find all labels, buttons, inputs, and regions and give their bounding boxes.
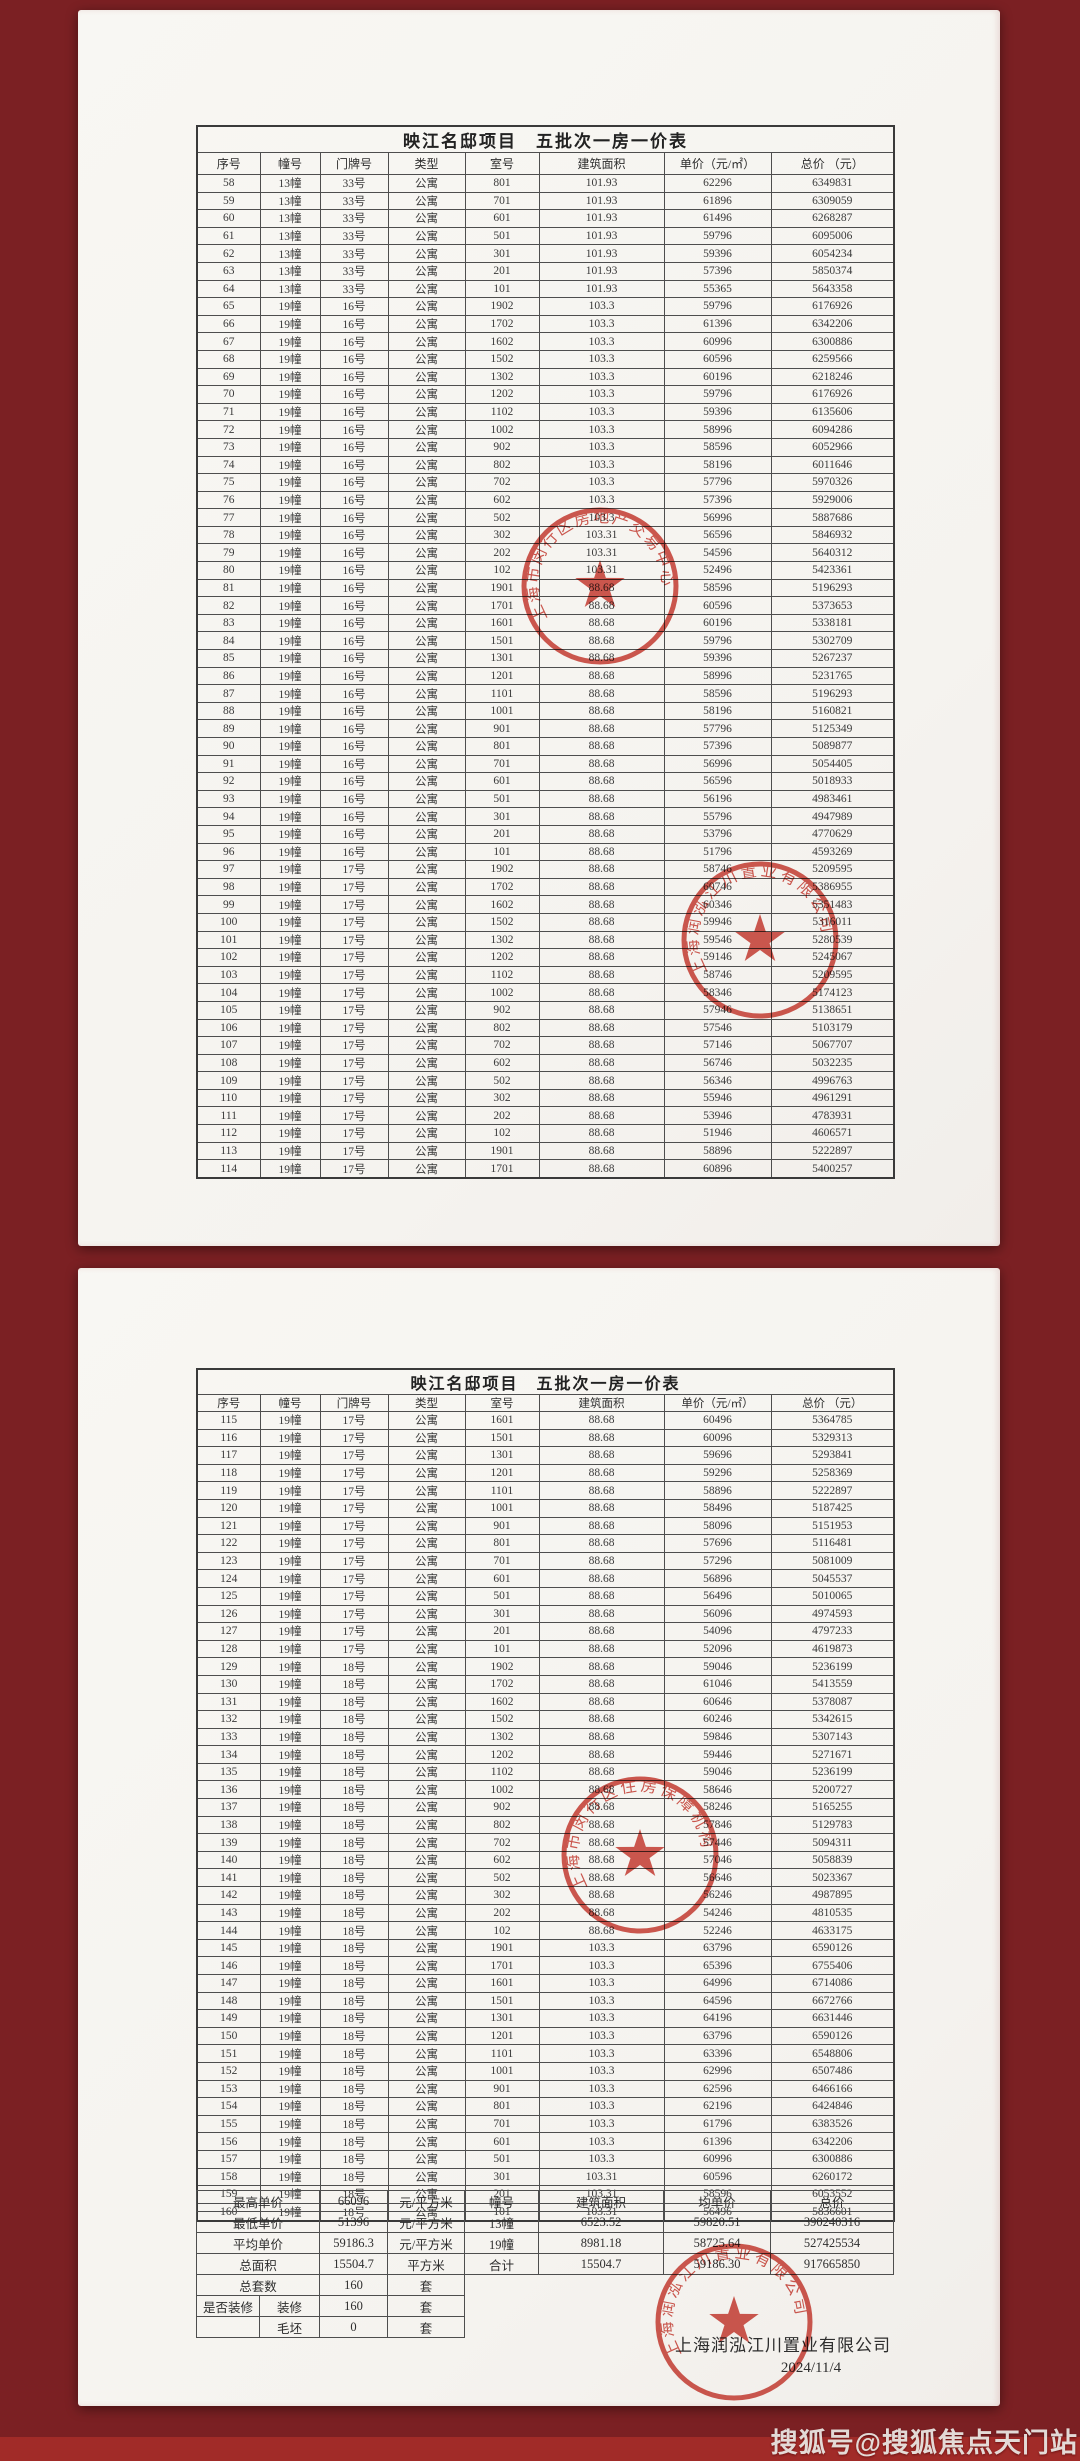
price-cell: 5196293 xyxy=(771,685,894,703)
price-cell: 150 xyxy=(197,2027,260,2045)
price-cell: 公寓 xyxy=(388,1763,465,1781)
price-cell: 88.68 xyxy=(539,1107,664,1125)
price-cell: 18号 xyxy=(320,1711,388,1729)
price-cell: 114 xyxy=(197,1160,260,1178)
price-cell: 1101 xyxy=(465,2045,539,2063)
price-cell: 301 xyxy=(465,1605,539,1623)
price-cell: 公寓 xyxy=(388,386,465,404)
price-cell: 64196 xyxy=(664,2010,771,2028)
company-block: 上海润泓江川置业有限公司 2024/11/4 xyxy=(583,2331,983,2377)
price-cell: 101.93 xyxy=(539,280,664,298)
price-cell: 88.68 xyxy=(539,702,664,720)
price-table-page1: 映江名邸项目 五批次一房一价表序号幢号门牌号类型室号建筑面积单价（元/㎡）总价 … xyxy=(196,125,895,1179)
summary-row: 平均单价59186.3元/平方米19幢8981.1858725.64527425… xyxy=(197,2233,894,2254)
price-cell: 19幢 xyxy=(260,966,320,984)
price-cell: 88.68 xyxy=(539,1054,664,1072)
summary-label: 最低单价 xyxy=(197,2212,320,2233)
summary-right-cell: 建筑面积 xyxy=(539,2191,664,2212)
price-cell: 19幢 xyxy=(260,949,320,967)
price-cell: 公寓 xyxy=(388,2150,465,2168)
price-row: 15519幢18号公寓701103.3617966383526 xyxy=(197,2115,894,2133)
price-cell: 1501 xyxy=(465,1992,539,2010)
price-cell: 5067707 xyxy=(771,1037,894,1055)
price-cell: 101.93 xyxy=(539,245,664,263)
price-cell: 88.68 xyxy=(539,1781,664,1799)
price-cell: 78 xyxy=(197,526,260,544)
price-cell: 公寓 xyxy=(388,1658,465,1676)
price-cell: 18号 xyxy=(320,1799,388,1817)
price-row: 10919幢17号公寓50288.68563464996763 xyxy=(197,1072,894,1090)
price-cell: 公寓 xyxy=(388,2027,465,2045)
price-cell: 71 xyxy=(197,403,260,421)
price-cell: 5200727 xyxy=(771,1781,894,1799)
price-cell: 101.93 xyxy=(539,227,664,245)
price-cell: 118 xyxy=(197,1464,260,1482)
price-cell: 104 xyxy=(197,984,260,1002)
price-cell: 4987895 xyxy=(771,1887,894,1905)
price-cell: 19幢 xyxy=(260,685,320,703)
price-cell: 59146 xyxy=(664,949,771,967)
price-cell: 4593269 xyxy=(771,843,894,861)
price-cell: 103.3 xyxy=(539,421,664,439)
column-header: 单价（元/㎡） xyxy=(664,153,771,175)
price-cell: 4783931 xyxy=(771,1107,894,1125)
summary-row: 是否装修装修160套 xyxy=(197,2296,894,2317)
price-cell: 5386955 xyxy=(771,878,894,896)
price-cell: 公寓 xyxy=(388,2168,465,2186)
price-cell: 88.68 xyxy=(539,597,664,615)
price-cell: 60896 xyxy=(664,1160,771,1178)
price-cell: 公寓 xyxy=(388,245,465,263)
price-cell: 1601 xyxy=(465,1975,539,1993)
price-cell: 公寓 xyxy=(388,1037,465,1055)
price-cell: 16号 xyxy=(320,808,388,826)
price-cell: 5196293 xyxy=(771,579,894,597)
price-cell: 19幢 xyxy=(260,790,320,808)
summary-unit: 套 xyxy=(388,2317,465,2338)
price-cell: 1502 xyxy=(465,1711,539,1729)
price-cell: 5929006 xyxy=(771,491,894,509)
price-cell: 公寓 xyxy=(388,1922,465,1940)
price-cell: 5165255 xyxy=(771,1799,894,1817)
price-cell: 19幢 xyxy=(260,421,320,439)
price-row: 8819幢16号公寓100188.68581965160821 xyxy=(197,702,894,720)
price-cell: 16号 xyxy=(320,579,388,597)
price-row: 15219幢18号公寓1001103.3629966507486 xyxy=(197,2062,894,2080)
price-cell: 5187425 xyxy=(771,1499,894,1517)
price-cell: 58746 xyxy=(664,966,771,984)
price-cell: 88.68 xyxy=(539,1834,664,1852)
price-cell: 88.68 xyxy=(539,1089,664,1107)
price-cell: 1001 xyxy=(465,2062,539,2080)
price-row: 10419幢17号公寓100288.68583465174123 xyxy=(197,984,894,1002)
column-header: 室号 xyxy=(465,153,539,175)
price-cell: 1602 xyxy=(465,333,539,351)
price-row: 10219幢17号公寓120288.68591465245067 xyxy=(197,949,894,967)
price-cell: 5160821 xyxy=(771,702,894,720)
price-cell: 33号 xyxy=(320,210,388,228)
doc-title-row: 映江名邸项目 五批次一房一价表 xyxy=(197,1369,894,1395)
price-row: 8319幢16号公寓160188.68601965338181 xyxy=(197,614,894,632)
column-header: 类型 xyxy=(388,153,465,175)
price-cell: 5209595 xyxy=(771,861,894,879)
summary-right-cell: 合计 xyxy=(465,2254,539,2275)
price-cell: 103.3 xyxy=(539,491,664,509)
price-cell: 公寓 xyxy=(388,949,465,967)
price-cell: 58496 xyxy=(664,1499,771,1517)
price-cell: 6268287 xyxy=(771,210,894,228)
price-cell: 59846 xyxy=(664,1728,771,1746)
price-cell: 17号 xyxy=(320,1552,388,1570)
price-cell: 公寓 xyxy=(388,931,465,949)
price-row: 10019幢17号公寓150288.68599465316011 xyxy=(197,913,894,931)
price-cell: 19幢 xyxy=(260,2080,320,2098)
price-cell: 19幢 xyxy=(260,1037,320,1055)
price-cell: 58 xyxy=(197,175,260,193)
price-cell: 52246 xyxy=(664,1922,771,1940)
price-cell: 公寓 xyxy=(388,421,465,439)
price-row: 8719幢16号公寓110188.68585965196293 xyxy=(197,685,894,703)
price-cell: 1001 xyxy=(465,702,539,720)
price-cell: 5058839 xyxy=(771,1851,894,1869)
price-cell: 16号 xyxy=(320,333,388,351)
price-cell: 602 xyxy=(465,1851,539,1869)
price-cell: 16号 xyxy=(320,632,388,650)
price-cell: 公寓 xyxy=(388,1447,465,1465)
price-cell: 19幢 xyxy=(260,843,320,861)
price-cell: 52096 xyxy=(664,1640,771,1658)
price-cell: 701 xyxy=(465,755,539,773)
price-cell: 103.31 xyxy=(539,562,664,580)
price-cell: 111 xyxy=(197,1107,260,1125)
price-cell: 5373653 xyxy=(771,597,894,615)
price-row: 6519幢16号公寓1902103.3597966176926 xyxy=(197,298,894,316)
price-cell: 58996 xyxy=(664,667,771,685)
price-cell: 公寓 xyxy=(388,984,465,1002)
price-cell: 5010065 xyxy=(771,1587,894,1605)
price-cell: 117 xyxy=(197,1447,260,1465)
price-cell: 88.68 xyxy=(539,861,664,879)
price-cell: 202 xyxy=(465,1904,539,1922)
price-cell: 1302 xyxy=(465,1728,539,1746)
price-cell: 公寓 xyxy=(388,825,465,843)
price-cell: 5054405 xyxy=(771,755,894,773)
price-cell: 101.93 xyxy=(539,192,664,210)
price-cell: 17号 xyxy=(320,1535,388,1553)
price-cell: 88.68 xyxy=(539,667,664,685)
price-cell: 5364785 xyxy=(771,1412,894,1430)
price-cell: 77 xyxy=(197,509,260,527)
price-cell: 17号 xyxy=(320,1107,388,1125)
price-cell: 88.68 xyxy=(539,755,664,773)
price-cell: 公寓 xyxy=(388,650,465,668)
price-cell: 公寓 xyxy=(388,227,465,245)
price-row: 15619幢18号公寓601103.3613966342206 xyxy=(197,2133,894,2151)
price-cell: 88.68 xyxy=(539,1499,664,1517)
price-cell: 124 xyxy=(197,1570,260,1588)
price-cell: 801 xyxy=(465,2098,539,2116)
watermark-text: 搜狐号@搜狐焦点天门站 xyxy=(771,2421,1078,2460)
price-cell: 60996 xyxy=(664,2150,771,2168)
price-cell: 57696 xyxy=(664,1535,771,1553)
price-cell: 17号 xyxy=(320,966,388,984)
price-cell: 59946 xyxy=(664,913,771,931)
price-cell: 公寓 xyxy=(388,1799,465,1817)
price-cell: 1302 xyxy=(465,931,539,949)
price-cell: 1501 xyxy=(465,632,539,650)
price-row: 14819幢18号公寓1501103.3645966672766 xyxy=(197,1992,894,2010)
price-cell: 132 xyxy=(197,1711,260,1729)
price-cell: 56346 xyxy=(664,1072,771,1090)
price-cell: 16号 xyxy=(320,474,388,492)
price-cell: 公寓 xyxy=(388,861,465,879)
price-cell: 19幢 xyxy=(260,1160,320,1178)
price-cell: 19幢 xyxy=(260,1992,320,2010)
price-row: 12219幢17号公寓80188.68576965116481 xyxy=(197,1535,894,1553)
price-cell: 19幢 xyxy=(260,350,320,368)
summary-value: 15504.7 xyxy=(320,2254,388,2275)
price-cell: 公寓 xyxy=(388,1412,465,1430)
price-row: 15119幢18号公寓1101103.3633966548806 xyxy=(197,2045,894,2063)
price-cell: 6755406 xyxy=(771,1957,894,1975)
price-cell: 19幢 xyxy=(260,632,320,650)
price-cell: 19幢 xyxy=(260,1851,320,1869)
price-row: 6819幢16号公寓1502103.3605966259566 xyxy=(197,350,894,368)
price-cell: 65396 xyxy=(664,1957,771,1975)
price-cell: 19幢 xyxy=(260,1693,320,1711)
price-cell: 602 xyxy=(465,1054,539,1072)
price-cell: 58096 xyxy=(664,1517,771,1535)
price-cell: 6054234 xyxy=(771,245,894,263)
price-row: 6213幢33号公寓301101.93593966054234 xyxy=(197,245,894,263)
price-row: 14119幢18号公寓50288.68566465023367 xyxy=(197,1869,894,1887)
price-cell: 602 xyxy=(465,491,539,509)
price-cell: 63796 xyxy=(664,2027,771,2045)
price-cell: 5316011 xyxy=(771,913,894,931)
price-cell: 19幢 xyxy=(260,1975,320,1993)
price-cell: 88.68 xyxy=(539,1429,664,1447)
price-cell: 4606571 xyxy=(771,1125,894,1143)
price-cell: 16号 xyxy=(320,597,388,615)
price-cell: 16号 xyxy=(320,544,388,562)
price-cell: 80 xyxy=(197,562,260,580)
price-cell: 公寓 xyxy=(388,210,465,228)
summary-value: 51396 xyxy=(320,2212,388,2233)
price-cell: 5018933 xyxy=(771,773,894,791)
price-cell: 62196 xyxy=(664,2098,771,2116)
price-cell: 6309059 xyxy=(771,192,894,210)
price-cell: 6176926 xyxy=(771,386,894,404)
price-cell: 公寓 xyxy=(388,913,465,931)
price-cell: 19幢 xyxy=(260,526,320,544)
price-cell: 公寓 xyxy=(388,1623,465,1641)
price-cell: 公寓 xyxy=(388,1072,465,1090)
price-cell: 301 xyxy=(465,2168,539,2186)
price-cell: 157 xyxy=(197,2150,260,2168)
price-cell: 106 xyxy=(197,1019,260,1037)
price-cell: 66 xyxy=(197,315,260,333)
price-cell: 公寓 xyxy=(388,702,465,720)
price-cell: 公寓 xyxy=(388,298,465,316)
price-cell: 88.68 xyxy=(539,685,664,703)
price-cell: 56246 xyxy=(664,1887,771,1905)
price-cell: 1901 xyxy=(465,579,539,597)
price-cell: 134 xyxy=(197,1746,260,1764)
price-cell: 公寓 xyxy=(388,1107,465,1125)
price-cell: 18号 xyxy=(320,1992,388,2010)
price-cell: 公寓 xyxy=(388,315,465,333)
price-cell: 5293841 xyxy=(771,1447,894,1465)
price-cell: 17号 xyxy=(320,913,388,931)
price-cell: 54596 xyxy=(664,544,771,562)
price-cell: 59696 xyxy=(664,1447,771,1465)
price-row: 11319幢17号公寓190188.68588965222897 xyxy=(197,1142,894,1160)
price-cell: 88.68 xyxy=(539,1658,664,1676)
price-row: 12319幢17号公寓70188.68572965081009 xyxy=(197,1552,894,1570)
price-cell: 56496 xyxy=(664,1587,771,1605)
price-row: 11919幢17号公寓110188.68588965222897 xyxy=(197,1482,894,1500)
price-cell: 19幢 xyxy=(260,1464,320,1482)
price-cell: 103.3 xyxy=(539,315,664,333)
price-cell: 88 xyxy=(197,702,260,720)
price-cell: 公寓 xyxy=(388,1499,465,1517)
price-cell: 801 xyxy=(465,1535,539,1553)
price-cell: 84 xyxy=(197,632,260,650)
price-row: 10619幢17号公寓80288.68575465103179 xyxy=(197,1019,894,1037)
price-cell: 18号 xyxy=(320,1781,388,1799)
price-cell: 1101 xyxy=(465,685,539,703)
price-cell: 公寓 xyxy=(388,2045,465,2063)
price-cell: 59 xyxy=(197,192,260,210)
price-cell: 58996 xyxy=(664,421,771,439)
price-cell: 1202 xyxy=(465,1746,539,1764)
price-cell: 5103179 xyxy=(771,1019,894,1037)
price-row: 7919幢16号公寓202103.31545965640312 xyxy=(197,544,894,562)
price-cell: 1301 xyxy=(465,650,539,668)
price-cell: 33号 xyxy=(320,280,388,298)
price-cell: 156 xyxy=(197,2133,260,2151)
price-cell: 110 xyxy=(197,1089,260,1107)
price-cell: 19幢 xyxy=(260,1922,320,1940)
price-cell: 公寓 xyxy=(388,1160,465,1178)
price-cell: 19幢 xyxy=(260,386,320,404)
price-cell: 公寓 xyxy=(388,1640,465,1658)
price-cell: 58746 xyxy=(664,861,771,879)
price-cell: 19幢 xyxy=(260,808,320,826)
price-cell: 18号 xyxy=(320,2062,388,2080)
price-cell: 601 xyxy=(465,1570,539,1588)
price-cell: 109 xyxy=(197,1072,260,1090)
price-row: 15819幢18号公寓301103.31605966260172 xyxy=(197,2168,894,2186)
price-cell: 137 xyxy=(197,1799,260,1817)
price-cell: 86 xyxy=(197,667,260,685)
price-cell: 101 xyxy=(465,1640,539,1658)
price-cell: 公寓 xyxy=(388,1142,465,1160)
price-cell: 54246 xyxy=(664,1904,771,1922)
price-cell: 60596 xyxy=(664,597,771,615)
summary-value: 160 xyxy=(320,2275,388,2296)
price-cell: 1302 xyxy=(465,368,539,386)
price-cell: 17号 xyxy=(320,1587,388,1605)
price-cell: 17号 xyxy=(320,931,388,949)
price-cell: 6052966 xyxy=(771,438,894,456)
price-row: 13519幢18号公寓110288.68590465236199 xyxy=(197,1763,894,1781)
price-cell: 19幢 xyxy=(260,720,320,738)
price-cell: 59396 xyxy=(664,403,771,421)
summary-label xyxy=(197,2317,260,2338)
summary-unit: 平方米 xyxy=(388,2254,465,2275)
price-cell: 公寓 xyxy=(388,491,465,509)
price-cell: 公寓 xyxy=(388,1535,465,1553)
summary-right-cell: 59820.51 xyxy=(664,2212,771,2233)
price-cell: 6218246 xyxy=(771,368,894,386)
price-cell: 33号 xyxy=(320,227,388,245)
price-cell: 61896 xyxy=(664,192,771,210)
price-cell: 57396 xyxy=(664,262,771,280)
price-cell: 56196 xyxy=(664,790,771,808)
price-cell: 88.68 xyxy=(539,1675,664,1693)
price-cell: 60646 xyxy=(664,1693,771,1711)
price-cell: 88.68 xyxy=(539,1142,664,1160)
price-cell: 19幢 xyxy=(260,2150,320,2168)
price-cell: 17号 xyxy=(320,949,388,967)
price-cell: 公寓 xyxy=(388,1781,465,1799)
price-cell: 19幢 xyxy=(260,579,320,597)
price-cell: 19幢 xyxy=(260,1499,320,1517)
price-cell: 103.31 xyxy=(539,544,664,562)
summary-right-cell: 8981.18 xyxy=(539,2233,664,2254)
price-cell: 18号 xyxy=(320,1658,388,1676)
summary-right-cell: 58725.64 xyxy=(664,2233,771,2254)
price-cell: 103.3 xyxy=(539,1975,664,1993)
price-cell: 公寓 xyxy=(388,1939,465,1957)
price-row: 12519幢17号公寓50188.68564965010065 xyxy=(197,1587,894,1605)
price-cell: 19幢 xyxy=(260,702,320,720)
summary-table: 最高单价66096元/平方米幢号建筑面积均单价总价最低单价51396元/平方米1… xyxy=(196,2190,894,2338)
doc-title: 映江名邸项目 五批次一房一价表 xyxy=(197,126,894,153)
price-cell: 公寓 xyxy=(388,1904,465,1922)
price-cell: 88.68 xyxy=(539,843,664,861)
price-cell: 1001 xyxy=(465,1499,539,1517)
price-cell: 19幢 xyxy=(260,509,320,527)
price-cell: 17号 xyxy=(320,1623,388,1641)
price-cell: 17号 xyxy=(320,1499,388,1517)
summary-value: 59186.3 xyxy=(320,2233,388,2254)
price-cell: 56996 xyxy=(664,755,771,773)
price-cell: 88.68 xyxy=(539,773,664,791)
price-cell: 19幢 xyxy=(260,368,320,386)
price-cell: 88.68 xyxy=(539,632,664,650)
price-cell: 125 xyxy=(197,1587,260,1605)
price-cell: 902 xyxy=(465,1799,539,1817)
price-cell: 60096 xyxy=(664,1429,771,1447)
price-cell: 公寓 xyxy=(388,966,465,984)
price-cell: 16号 xyxy=(320,350,388,368)
price-cell: 公寓 xyxy=(388,2080,465,2098)
price-cell: 81 xyxy=(197,579,260,597)
price-cell: 6259566 xyxy=(771,350,894,368)
price-cell: 17号 xyxy=(320,1072,388,1090)
price-cell: 公寓 xyxy=(388,667,465,685)
price-cell: 202 xyxy=(465,544,539,562)
price-row: 13819幢18号公寓80288.68578465129783 xyxy=(197,1816,894,1834)
price-cell: 128 xyxy=(197,1640,260,1658)
price-cell: 61 xyxy=(197,227,260,245)
price-cell: 88.68 xyxy=(539,1904,664,1922)
price-cell: 1202 xyxy=(465,386,539,404)
price-cell: 公寓 xyxy=(388,1482,465,1500)
price-cell: 5222897 xyxy=(771,1142,894,1160)
